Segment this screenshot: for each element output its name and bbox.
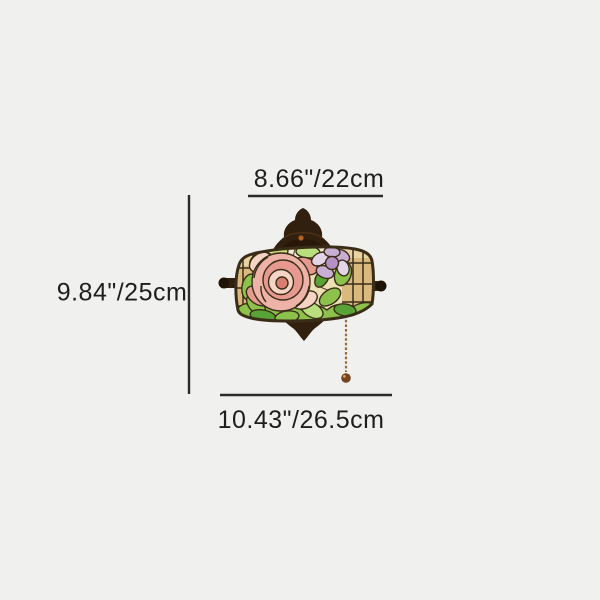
- dimension-label-top: 8.66"/22cm: [254, 165, 385, 194]
- dimension-label-left: 9.84"/25cm: [57, 279, 188, 308]
- pink-rose: [243, 248, 320, 313]
- stained-glass-shade: [230, 240, 380, 330]
- product-dimension-diagram: 8.66"/22cm 9.84"/25cm 10.43"/26.5cm: [0, 0, 600, 600]
- dimension-label-bottom: 10.43"/26.5cm: [218, 406, 385, 435]
- mounting-screw-top: [298, 235, 303, 240]
- pull-chain-ball: [341, 373, 351, 383]
